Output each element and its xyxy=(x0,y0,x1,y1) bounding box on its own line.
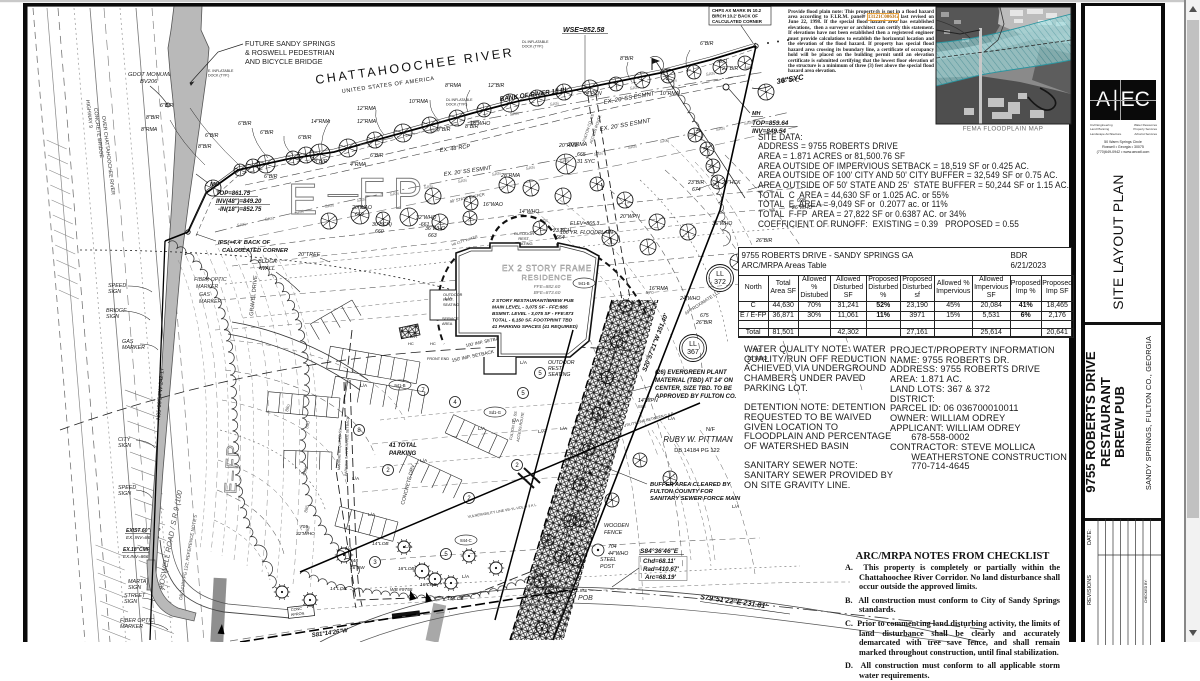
svg-text:6"BIR: 6"BIR xyxy=(370,153,384,159)
svg-text:EX 2 STORY FRAME: EX 2 STORY FRAME xyxy=(502,264,592,273)
svg-text:660: 660 xyxy=(375,229,384,235)
svg-text:Chd=68.11': Chd=68.11' xyxy=(643,558,676,565)
svg-text:BFE=873.60: BFE=873.60 xyxy=(534,290,561,296)
svg-text:REST.: REST. xyxy=(443,298,454,302)
svg-text:L/A: L/A xyxy=(462,574,470,580)
svg-text:SIGN: SIGN xyxy=(108,289,121,295)
svg-text:41 PARKING SPACES (41 REQUIRED: 41 PARKING SPACES (41 REQUIRED) xyxy=(491,324,578,330)
svg-text:8: 8 xyxy=(357,428,361,434)
svg-text:20"TREE: 20"TREE xyxy=(297,252,321,258)
svg-text:671: 671 xyxy=(719,59,728,65)
svg-text:10"RMA: 10"RMA xyxy=(409,99,429,105)
svg-text:MH: MH xyxy=(752,111,760,117)
svg-text:SIGN: SIGN xyxy=(106,314,119,320)
svg-text:CALCULATED CORNER: CALCULATED CORNER xyxy=(712,19,763,24)
svg-text:8"RMA: 8"RMA xyxy=(141,127,158,133)
svg-text:SAN: SAN xyxy=(509,111,519,117)
svg-text:36"WHO: 36"WHO xyxy=(425,226,445,232)
svg-text:L/A: L/A xyxy=(560,426,568,432)
svg-text:14"LOB: 14"LOB xyxy=(330,586,347,592)
svg-text:L/A: L/A xyxy=(420,458,428,464)
svg-text:24"WHO: 24"WHO xyxy=(679,296,700,302)
svg-text:E: E xyxy=(288,175,317,224)
svg-text:8"BIR: 8"BIR xyxy=(198,144,212,150)
svg-text:FEMA FLOODPLAIN MAP: FEMA FLOODPLAIN MAP xyxy=(963,126,1044,133)
svg-text:ACCESS ROUTE: ACCESS ROUTE xyxy=(516,412,525,443)
svg-text:L/A: L/A xyxy=(360,383,368,389)
svg-text:14"WPN: 14"WPN xyxy=(638,398,658,404)
svg-text:ELEV=865.3: ELEV=865.3 xyxy=(570,221,599,227)
svg-text:TOP=861.75: TOP=861.75 xyxy=(216,191,251,197)
svg-text:3: 3 xyxy=(373,560,377,566)
svg-text:20"WPN: 20"WPN xyxy=(619,214,640,220)
svg-text:6"BIR: 6"BIR xyxy=(260,130,274,136)
svg-text:EX. 20' SS ESMNT: EX. 20' SS ESMNT xyxy=(599,118,652,133)
svg-text:6"BIR: 6"BIR xyxy=(298,135,312,141)
svg-text:DL INFLATABLE: DL INFLATABLE xyxy=(446,98,473,102)
svg-text:OUTDOOR: OUTDOOR xyxy=(443,293,463,297)
svg-text:6"BIR: 6"BIR xyxy=(238,121,252,127)
svg-text:704: 704 xyxy=(608,544,617,550)
svg-text:884: 884 xyxy=(302,465,309,474)
svg-text:SAN: SAN xyxy=(491,171,501,177)
svg-text:SAN: SAN xyxy=(559,158,569,164)
svg-text:RUBY W. PITTMAN: RUBY W. PITTMAN xyxy=(663,435,733,444)
svg-text:367: 367 xyxy=(687,349,699,356)
svg-text:14"LOB: 14"LOB xyxy=(447,596,464,602)
svg-text:WB #9755: WB #9755 xyxy=(390,587,413,593)
svg-text:PARKING: PARKING xyxy=(389,451,417,457)
svg-text:6"BIR: 6"BIR xyxy=(205,133,219,139)
svg-text:16 DW: 16 DW xyxy=(350,565,365,571)
svg-text:663: 663 xyxy=(428,233,437,239)
svg-text:SANITARY SEWER FORCE MAIN: SANITARY SEWER FORCE MAIN xyxy=(650,496,741,502)
svg-text:16"WAO: 16"WAO xyxy=(483,202,503,208)
svg-text:28"RMA: 28"RMA xyxy=(500,173,521,179)
svg-text:MATERIAL (TBD) AT 14' ON: MATERIAL (TBD) AT 14' ON xyxy=(655,378,734,384)
svg-text:SAN: SAN xyxy=(264,216,274,222)
svg-text:FENCE: FENCE xyxy=(604,530,623,536)
svg-text:DOCK (TYP.): DOCK (TYP.) xyxy=(446,103,467,107)
svg-text:N/F: N/F xyxy=(706,427,716,433)
svg-text:654: 654 xyxy=(556,235,565,241)
svg-text:6"BIR: 6"BIR xyxy=(264,174,278,180)
svg-text:MARKER: MARKER xyxy=(196,284,218,290)
svg-text:AND BICYCLE BRIDGE: AND BICYCLE BRIDGE xyxy=(245,57,323,66)
svg-text:32"WHO: 32"WHO xyxy=(296,531,315,537)
svg-text:SAN: SAN xyxy=(429,128,439,134)
svg-text:SAN: SAN xyxy=(629,85,639,91)
svg-text:941-B: 941-B xyxy=(578,281,589,286)
svg-text:POST: POST xyxy=(600,564,615,570)
svg-text:8"BIR: 8"BIR xyxy=(146,115,160,121)
svg-text:MAIN LEVEL - 3,075 SF - FFE:88: MAIN LEVEL - 3,075 SF - FFE:885 xyxy=(492,305,568,311)
svg-text:L/A: L/A xyxy=(368,512,376,518)
svg-text:20"WAO: 20"WAO xyxy=(351,205,372,211)
svg-text:IPS: IPS xyxy=(580,588,587,593)
svg-text:20"HCK: 20"HCK xyxy=(721,180,741,186)
svg-text:EX. 20' SS ESMNT: EX. 20' SS ESMNT xyxy=(443,165,492,178)
svg-text:H6 CITY WATER: H6 CITY WATER xyxy=(451,235,479,247)
svg-text:BV206: BV206 xyxy=(140,79,158,85)
svg-text:HC: HC xyxy=(430,341,436,346)
svg-text:5: 5 xyxy=(444,552,448,558)
svg-text:-IN(18")=852.75: -IN(18")=852.75 xyxy=(218,207,262,213)
svg-text:PARKING IN INTERFACE SETBACK: PARKING IN INTERFACE SETBACK xyxy=(344,416,350,476)
svg-text:27"BIR: 27"BIR xyxy=(721,66,739,72)
svg-text:SAN: SAN xyxy=(705,71,715,77)
svg-text:26"BIR: 26"BIR xyxy=(755,238,773,244)
svg-text:MH: MH xyxy=(210,182,220,188)
svg-text:SIGN: SIGN xyxy=(128,585,141,591)
svg-text:& ROSWELL PEDESTRIAN: & ROSWELL PEDESTRIAN xyxy=(245,48,335,57)
svg-text:CONCRETE DRV: CONCRETE DRV xyxy=(400,463,417,505)
svg-text:INV(48")=849.20: INV(48")=849.20 xyxy=(216,199,262,205)
svg-text:SERVICE: SERVICE xyxy=(442,317,459,321)
svg-text:DB 14184 PG 122: DB 14184 PG 122 xyxy=(674,448,719,454)
svg-text:372: 372 xyxy=(714,279,726,286)
svg-text:BIRCH 10.2' BACK OF: BIRCH 10.2' BACK OF xyxy=(712,14,758,19)
svg-text:5: 5 xyxy=(538,371,542,377)
svg-text:665: 665 xyxy=(577,152,586,158)
svg-text:TOP=859.64: TOP=859.64 xyxy=(752,120,789,127)
svg-text:LL: LL xyxy=(689,341,697,348)
svg-text:DOCK (TYP.): DOCK (TYP.) xyxy=(522,45,543,49)
svg-text:L/A: L/A xyxy=(352,476,360,482)
svg-text:SAN: SAN xyxy=(236,222,246,228)
svg-text:20"RME: 20"RME xyxy=(558,143,579,149)
svg-text:E. INFLATABLE: E. INFLATABLE xyxy=(208,69,234,73)
svg-text:DOCK (TYP.): DOCK (TYP.) xyxy=(208,74,229,78)
svg-text:8"RMA: 8"RMA xyxy=(445,83,462,89)
svg-text:32"WHO: 32"WHO xyxy=(416,215,436,221)
svg-text:18"WHO: 18"WHO xyxy=(470,121,490,127)
svg-text:SAN: SAN xyxy=(589,93,599,99)
svg-text:5: 5 xyxy=(521,391,525,397)
svg-text:16"RMA: 16"RMA xyxy=(649,286,669,292)
svg-text:IPS(+4.4' BACK OF: IPS(+4.4' BACK OF xyxy=(218,240,271,246)
svg-text:APPROXIMATE LLL: APPROXIMATE LLL xyxy=(684,289,721,316)
svg-text:8"BIR: 8"BIR xyxy=(314,159,328,165)
svg-text:SAN: SAN xyxy=(525,165,535,171)
svg-text:DL INFLATABLE: DL INFLATABLE xyxy=(522,40,549,44)
svg-text:2: 2 xyxy=(386,468,390,474)
svg-text:648: 648 xyxy=(350,558,358,564)
svg-text:MARKER: MARKER xyxy=(120,624,143,630)
svg-text:SAN: SAN xyxy=(627,144,637,150)
svg-text:14"WHO: 14"WHO xyxy=(519,209,539,215)
svg-text:Sd1-G: Sd1-G xyxy=(489,410,501,415)
svg-text:MARKER: MARKER xyxy=(199,299,221,305)
svg-text:(26) EVERGREEN PLANT: (26) EVERGREEN PLANT xyxy=(655,370,728,376)
svg-text:SAN: SAN xyxy=(715,126,725,132)
svg-text:23"BIR: 23"BIR xyxy=(687,180,705,186)
svg-text:SAN: SAN xyxy=(593,151,603,157)
svg-text:12"BIR: 12"BIR xyxy=(488,83,505,89)
svg-text:FFE=882.60: FFE=882.60 xyxy=(534,284,561,290)
svg-text:31 SYC: 31 SYC xyxy=(577,159,595,165)
svg-text:FIBER OPTIC: FIBER OPTIC xyxy=(194,277,227,283)
svg-text:8"BIR: 8"BIR xyxy=(620,56,634,62)
svg-text:6"BIR: 6"BIR xyxy=(700,41,714,47)
svg-text:659: 659 xyxy=(355,212,364,218)
svg-text:2 STORY RESTAURANT/BREW PUB: 2 STORY RESTAURANT/BREW PUB xyxy=(491,298,574,304)
svg-text:SIGN: SIGN xyxy=(118,491,131,497)
svg-text:41 TOTAL: 41 TOTAL xyxy=(388,443,417,449)
svg-text:WSE=852.58: WSE=852.58 xyxy=(563,27,605,34)
svg-text:S84°36'46"E: S84°36'46"E xyxy=(640,547,679,555)
svg-text:23 BCH: 23 BCH xyxy=(552,228,571,234)
svg-text:SAN: SAN xyxy=(659,138,669,144)
svg-text:RESIDENCE: RESIDENCE xyxy=(522,273,573,282)
svg-text:Rad=410.67': Rad=410.67' xyxy=(643,566,679,573)
svg-text:4: 4 xyxy=(453,400,457,406)
svg-text:844-C: 844-C xyxy=(460,538,471,543)
svg-text:705: 705 xyxy=(300,524,308,530)
svg-text:EX. 48"RCP: EX. 48"RCP xyxy=(439,144,470,154)
svg-text:BUFFER AREA CLEARED BY: BUFFER AREA CLEARED BY xyxy=(650,482,732,488)
svg-text:6"BIR: 6"BIR xyxy=(160,103,174,109)
svg-text:30 BCH): 30 BCH) xyxy=(372,222,392,228)
svg-text:880: 880 xyxy=(304,420,311,429)
svg-text:FUTURE SANDY SPRINGS: FUTURE SANDY SPRINGS xyxy=(245,39,335,48)
svg-text:Arc=68.19': Arc=68.19' xyxy=(644,574,676,581)
svg-text:POB: POB xyxy=(578,595,593,602)
svg-text:HIGHWAY 9: HIGHWAY 9 xyxy=(84,100,93,129)
svg-text:STEEL: STEEL xyxy=(600,557,617,563)
svg-text:L/A: L/A xyxy=(478,426,486,432)
svg-text:LL: LL xyxy=(716,271,724,278)
svg-text:SEATING: SEATING xyxy=(548,372,570,378)
svg-text:12"RMA: 12"RMA xyxy=(357,106,377,112)
svg-text:CALCULATED CORNER: CALCULATED CORNER xyxy=(222,248,289,254)
svg-text:L/A: L/A xyxy=(732,504,740,510)
svg-text:SEATING: SEATING xyxy=(443,303,459,307)
svg-text:HC: HC xyxy=(408,341,414,346)
svg-text:FULTON COUNTY FOR: FULTON COUNTY FOR xyxy=(650,489,714,495)
svg-text:SIGN: SIGN xyxy=(124,599,137,605)
svg-text:L/A: L/A xyxy=(520,360,528,365)
svg-text:BSMNT. LEVEL - 3,075 SF - FFE:: BSMNT. LEVEL - 3,075 SF - FFE:873 xyxy=(492,311,574,317)
svg-text:26"BIR: 26"BIR xyxy=(695,320,713,326)
svg-text:SIGN: SIGN xyxy=(118,443,131,449)
svg-text:4"RMA: 4"RMA xyxy=(350,162,367,168)
svg-text:L/A: L/A xyxy=(600,414,608,420)
svg-text:88o: 88o xyxy=(284,403,291,412)
svg-text:VULNERABILITY LINE VB-YL-VOL: VULNERABILITY LINE VB-YL-VOL O 3 K L xyxy=(467,503,536,519)
svg-text:14"LOB: 14"LOB xyxy=(372,541,389,547)
svg-text:MARKER: MARKER xyxy=(122,345,145,351)
svg-text:AREA: AREA xyxy=(442,322,453,326)
svg-text:L/A: L/A xyxy=(668,416,676,422)
svg-text:SAN: SAN xyxy=(457,178,467,184)
svg-text:WOODEN: WOODEN xyxy=(604,523,629,529)
svg-text:GRAVEL DRIVE: GRAVEL DRIVE xyxy=(249,275,259,316)
svg-text:2: 2 xyxy=(515,463,519,469)
svg-text:EX.18"CMP: EX.18"CMP xyxy=(123,547,151,553)
svg-text:675: 675 xyxy=(700,313,709,319)
svg-text:FRONT END: FRONT END xyxy=(427,357,449,361)
svg-text:CHPS AX MARK IN 10.2: CHPS AX MARK IN 10.2 xyxy=(712,8,762,13)
svg-text:8"BIR: 8"BIR xyxy=(437,127,451,133)
svg-text:CENTER, SIZE TBD. TO BE: CENTER, SIZE TBD. TO BE xyxy=(655,386,733,392)
svg-text:TOTAL - 6,150 SF. FOOTPRINT TB: TOTAL - 6,150 SF. FOOTPRINT TBD xyxy=(492,318,573,324)
svg-text:APPROVED BY FULTON CO.: APPROVED BY FULTON CO. xyxy=(654,394,737,400)
svg-text:12"RMA: 12"RMA xyxy=(357,119,377,125)
